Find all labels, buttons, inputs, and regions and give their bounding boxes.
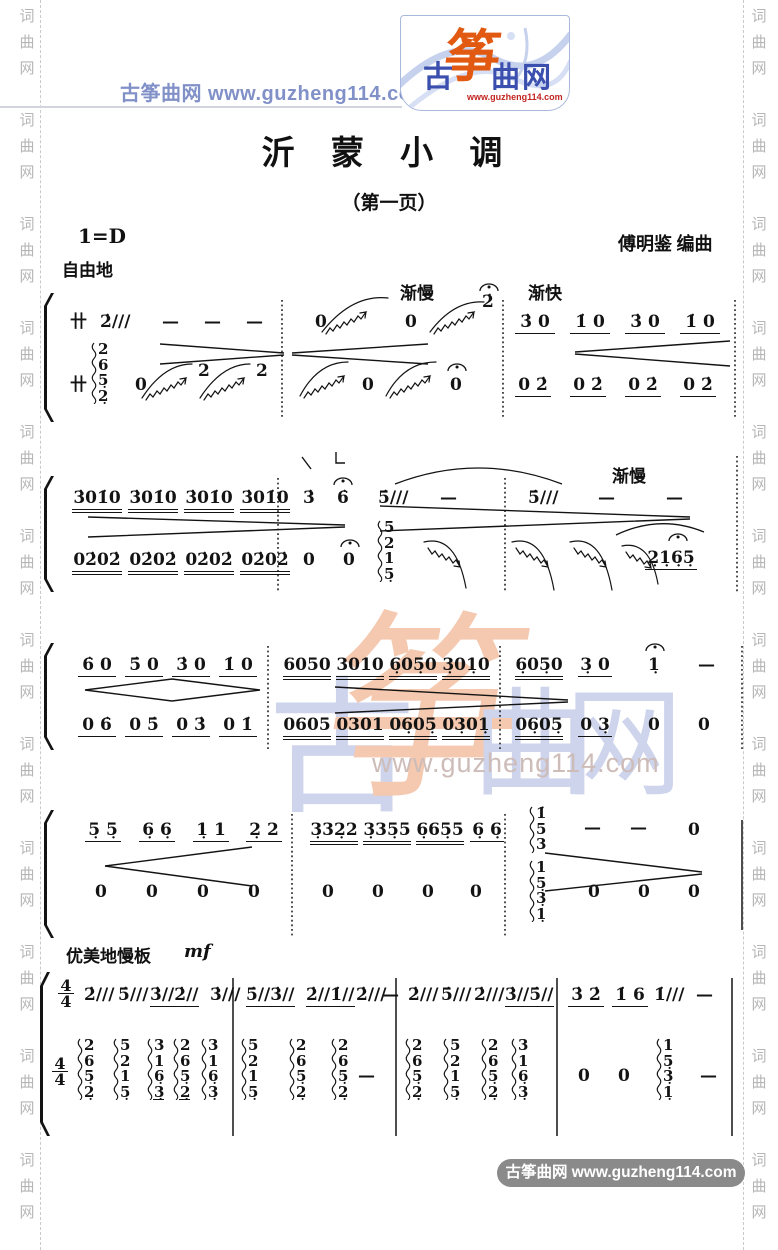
note-group: 3̇01̇0 <box>128 488 178 513</box>
glissando-up-marks <box>142 298 484 400</box>
note-group: 0 6̇ <box>78 715 116 737</box>
note-group: 06̣05̣ <box>389 715 437 740</box>
note-group: 0 <box>588 882 600 902</box>
chord: 2 6 5̣ 2̣ <box>288 1038 306 1100</box>
dynamic-mf: mf <box>184 941 211 962</box>
note-group: 03̣01̣ <box>442 715 490 740</box>
tempo-mark-freely: 自由地 <box>62 256 113 281</box>
note-group: 02̇02̇ <box>128 550 178 575</box>
note-group: 0 3̇ <box>172 715 210 737</box>
note-group: 3̇//5̇// <box>505 985 554 1007</box>
footer-site-link[interactable]: 古筝曲网 www.guzheng114.com <box>497 1159 745 1187</box>
note-group: 0 <box>470 882 482 902</box>
sheet-music-page: 词 曲 网 词 曲 网 词 曲 网 词 曲 网 词 曲 网 词 曲 网 词 曲 … <box>0 0 778 1250</box>
note-group: 0 <box>315 312 327 332</box>
note-group: 6̣05̣0 <box>515 655 563 680</box>
note-group: 3̇01̇0 <box>184 488 234 513</box>
note-group: 02̇02̇ <box>184 550 234 575</box>
chord: 5 2 1 5̣ <box>112 1038 130 1100</box>
key-signature: 1=D <box>78 224 126 248</box>
note-group: 3̇ 0 <box>172 655 210 677</box>
arpeggio-icon <box>172 1038 179 1100</box>
chord: 5 2 1 5̣ <box>376 520 394 582</box>
note-group: 0 2̇ <box>515 375 551 397</box>
note-group: 0301 <box>336 715 384 740</box>
note-group: — <box>382 985 399 1005</box>
note-group: — <box>666 488 683 508</box>
note-group: 0 2̇ <box>625 375 661 397</box>
arpeggio-icon <box>376 520 383 582</box>
chord: 2 6 5̣ 2̣ <box>76 1038 94 1100</box>
chord: 3 1 6̣ 3̣ <box>146 1038 164 1101</box>
note-group: 3̣35̣5 <box>363 820 411 845</box>
note-group: 06̣05̣ <box>515 715 563 740</box>
site-link[interactable]: 古筝曲网 www.guzheng114.com <box>120 77 430 106</box>
logo-url-text: www.guzheng114.com <box>467 92 563 102</box>
note-group: — <box>584 818 601 838</box>
note-group: — <box>246 312 263 332</box>
note-group: 3̣01̣0 <box>442 655 490 680</box>
note-group: 2 <box>198 361 210 381</box>
note-group: 0 <box>197 882 209 902</box>
arpeggio-icon <box>528 860 535 922</box>
note-group: 0 <box>362 375 374 395</box>
arpeggio-icon <box>510 1038 517 1100</box>
hairpin-lines <box>85 341 730 891</box>
note-group: 0 <box>648 715 660 735</box>
note-group: — <box>440 488 457 508</box>
note-group: 3̣32̣2 <box>310 820 358 845</box>
chord: 2 6 5̣ 2̣ <box>90 342 108 404</box>
note-group: 02̇02̇ <box>240 550 290 575</box>
note-group: 0 <box>638 882 650 902</box>
note-group: 0 <box>135 375 147 395</box>
note-group: 3̇ 0 <box>515 312 555 334</box>
chord: 1 5̣ 3̣ 1̣ <box>655 1038 673 1100</box>
note-group: 2̇ <box>482 292 494 312</box>
chord: 2 6 5̣ 2̣ <box>330 1038 348 1100</box>
note-group: 6̣65̣5 <box>416 820 464 845</box>
note-group: 0 <box>618 1066 630 1086</box>
note-group: 5̇/// <box>441 985 471 1005</box>
note-group: 2̣ 2 <box>246 820 282 842</box>
note-group: 1̣ 1 <box>193 820 229 842</box>
chord: 3 1 6̣ 3̣ <box>510 1038 528 1100</box>
piece-title: 沂 蒙 小 调 <box>0 126 778 174</box>
note-group: 0 <box>405 312 417 332</box>
note-group: 3̣ 0 <box>578 655 612 677</box>
note-group: 3̇/// <box>210 985 240 1005</box>
arpeggio-icon <box>330 1038 337 1100</box>
chord: 2 6 5̣ 2̣ <box>404 1038 422 1100</box>
grace-note-marks <box>302 452 345 469</box>
arpeggio-icon <box>240 1038 247 1100</box>
arpeggio-icon <box>90 342 97 404</box>
staff-bracket <box>40 293 54 1136</box>
note-group: 1̇ 0 <box>680 312 720 334</box>
note-group: 3̇01̇0 <box>240 488 290 513</box>
note-group: 6̣05̣0 <box>389 655 437 680</box>
arpeggio-icon <box>404 1038 411 1100</box>
string-symbol: 卄 <box>70 375 87 395</box>
note-group: 2̇/// <box>84 985 114 1005</box>
note-group: 6̣ 6̣ <box>139 820 175 842</box>
note-group: 3̇ <box>303 488 315 508</box>
note-group: 0 <box>578 1066 590 1086</box>
note-group: 5̣ 5̣ <box>85 820 121 842</box>
note-group: 0 <box>343 550 355 570</box>
time-signature: 44 <box>58 978 74 1009</box>
note-group: 0 2̇ <box>570 375 606 397</box>
logo-gu-character: 古 <box>423 52 453 96</box>
chord: 1 5̣ 3̣ 1̣ <box>528 860 546 922</box>
header-divider <box>0 106 402 108</box>
note-group: 02̇02̇ <box>72 550 122 575</box>
arpeggio-icon <box>442 1038 449 1100</box>
note-group: 0 5̇ <box>125 715 163 737</box>
note-group: — <box>358 1066 375 1086</box>
note-group: 5̇//3̇// <box>246 985 295 1007</box>
note-group: 1̇/// <box>654 985 684 1005</box>
note-group: — <box>630 818 647 838</box>
note-group: — <box>162 312 179 332</box>
note-group: 0 <box>146 882 158 902</box>
note-group: 5̇/// <box>378 488 408 508</box>
site-logo[interactable]: 筝 古 曲网 www.guzheng114.com <box>400 15 570 111</box>
note-group: 1̇ 0 <box>219 655 257 677</box>
arpeggio-icon <box>200 1038 207 1100</box>
note-group: — <box>696 985 713 1005</box>
note-group: 0605 <box>283 715 331 740</box>
tempo-mark-ritardando: 渐慢 <box>400 279 434 304</box>
note-group: 2̇/// <box>408 985 438 1005</box>
note-group: 5̇/// <box>118 985 148 1005</box>
note-group: 0 1̇ <box>219 715 257 737</box>
note-group: — <box>698 655 715 675</box>
note-group: 3010 <box>336 655 384 680</box>
note-group: 0 2̇ <box>680 375 716 397</box>
note-group: 0 <box>698 715 710 735</box>
note-group: 2̣1̣6̣5̣ <box>645 548 697 570</box>
note-group: 5̇/// <box>528 488 558 508</box>
note-group: 3̇ 2̇ <box>568 985 604 1007</box>
note-group: 5̇ 0 <box>125 655 163 677</box>
note-group: 0 <box>372 882 384 902</box>
note-group: 2 <box>256 361 268 381</box>
note-group: — <box>598 488 615 508</box>
note-group: 3̇01̇0 <box>72 488 122 513</box>
chord: 5 2 1 5̣ <box>240 1038 258 1100</box>
arpeggio-icon <box>480 1038 487 1100</box>
arpeggio-icon <box>528 806 535 853</box>
arpeggio-icon <box>76 1038 83 1100</box>
page-number-subtitle: （第一页） <box>0 188 778 215</box>
tempo-mark-ritardando-2: 渐慢 <box>612 462 646 487</box>
chord: 5 2 1 5̣ <box>442 1038 460 1100</box>
note-group: 6050 <box>283 655 331 680</box>
glissando-down-marks <box>424 541 658 590</box>
chord: 2 6 5̣ 2̣ <box>480 1038 498 1100</box>
composer-credit: 傅明鉴 编曲 <box>618 230 713 256</box>
note-group: 3̇ 0 <box>625 312 665 334</box>
note-group: 0 <box>688 882 700 902</box>
note-group: 0 <box>303 550 315 570</box>
note-group: 6̇ <box>337 488 349 508</box>
chord: 2 6 5̣ 2̣ <box>172 1038 190 1101</box>
note-group: 2̇/// <box>474 985 504 1005</box>
note-group: 3̇//2̇// <box>150 985 199 1007</box>
chord: 1̇ 5 3 <box>528 806 546 853</box>
note-group: 2̇/// <box>100 312 130 332</box>
tempo-mark-accelerando: 渐快 <box>528 279 562 304</box>
note-group: 6̣ 6̣ <box>470 820 504 842</box>
arpeggio-icon <box>288 1038 295 1100</box>
note-group: 0 3̣ <box>578 715 612 737</box>
arpeggio-icon <box>655 1038 662 1100</box>
logo-quwang-characters: 曲网 <box>491 54 553 96</box>
string-symbol: 卄 <box>70 312 87 332</box>
note-group: 1̇ 0 <box>570 312 610 334</box>
chord: 3 1 6̣ 3̣ <box>200 1038 218 1100</box>
note-group: 0 <box>422 882 434 902</box>
note-group: 1̇ 6 <box>612 985 648 1007</box>
note-group: 2̇//1̇// <box>306 985 355 1007</box>
note-group: — <box>700 1066 717 1086</box>
arpeggio-icon <box>112 1038 119 1100</box>
note-group: 0 <box>95 882 107 902</box>
time-signature: 44 <box>52 1056 68 1087</box>
note-group: 0 <box>450 375 462 395</box>
note-group: 6̇ 0 <box>78 655 116 677</box>
note-group: 0 <box>688 820 700 840</box>
note-group: — <box>204 312 221 332</box>
note-group: 1̣ <box>648 655 660 675</box>
tempo-mark-lento: 优美地慢板 <box>66 942 151 967</box>
note-group: 0 <box>322 882 334 902</box>
note-group: 0 <box>248 882 260 902</box>
arpeggio-icon <box>146 1038 153 1100</box>
